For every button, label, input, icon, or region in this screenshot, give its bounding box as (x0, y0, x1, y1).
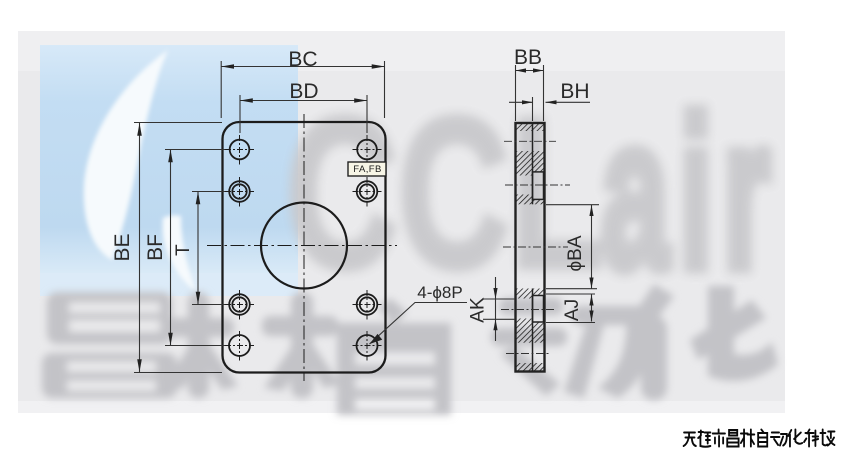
svg-text:air: air (601, 74, 780, 314)
svg-text:BD: BD (289, 80, 318, 103)
svg-text:BF: BF (144, 234, 167, 261)
svg-text:BB: BB (514, 46, 542, 69)
svg-text:T: T (173, 244, 194, 256)
svg-text:ϕBA: ϕBA (565, 235, 586, 271)
svg-text:AK: AK (468, 297, 489, 323)
svg-text:AJ: AJ (562, 299, 583, 321)
svg-text:BE: BE (111, 233, 134, 261)
svg-text:BC: BC (288, 48, 317, 71)
svg-text:4-ϕ8P: 4-ϕ8P (417, 283, 462, 302)
svg-text:BH: BH (560, 80, 589, 103)
svg-text:FA,FB: FA,FB (353, 164, 381, 175)
